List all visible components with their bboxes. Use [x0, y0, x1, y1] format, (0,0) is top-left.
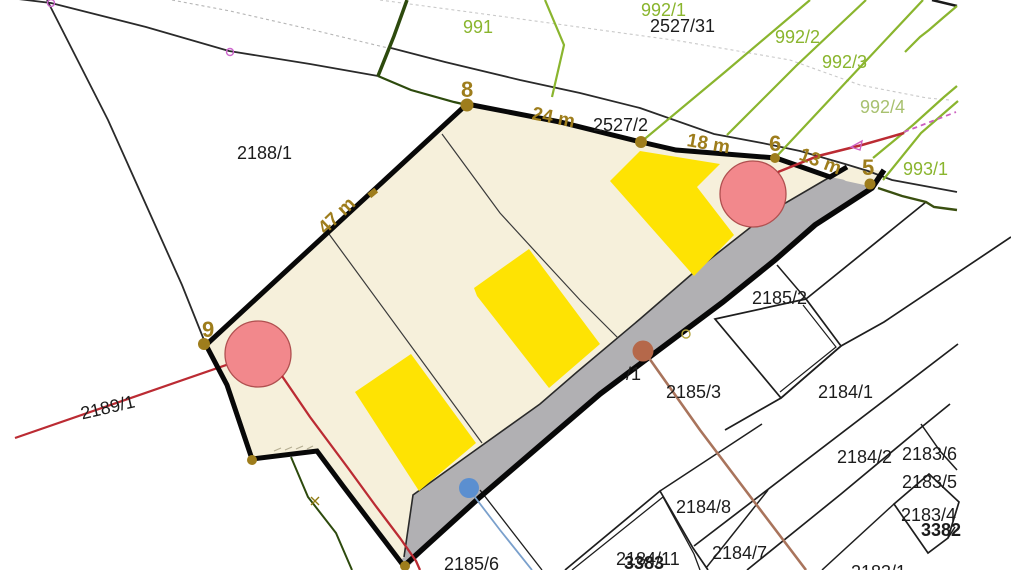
- svg-text:2185/3: 2185/3: [666, 382, 721, 402]
- svg-text:992/4: 992/4: [860, 97, 905, 117]
- svg-text:991: 991: [463, 17, 493, 37]
- svg-text:2184/1: 2184/1: [818, 382, 873, 402]
- svg-text:2185/2: 2185/2: [752, 288, 807, 308]
- svg-text:9: 9: [202, 317, 214, 342]
- svg-text:8: 8: [461, 77, 473, 102]
- svg-text:6: 6: [769, 131, 781, 156]
- svg-text:992/3: 992/3: [822, 52, 867, 72]
- svg-text:/1: /1: [626, 364, 641, 384]
- svg-text:2188/1: 2188/1: [237, 143, 292, 163]
- svg-text:2527/2: 2527/2: [593, 115, 648, 135]
- svg-text:2184/7: 2184/7: [712, 543, 767, 563]
- svg-text:2184/8: 2184/8: [676, 497, 731, 517]
- svg-text:2183/1: 2183/1: [851, 562, 906, 570]
- svg-text:2183/6: 2183/6: [902, 444, 957, 464]
- svg-text:993/1: 993/1: [903, 159, 948, 179]
- svg-text:5: 5: [862, 155, 874, 180]
- svg-text:2183/5: 2183/5: [902, 472, 957, 492]
- svg-text:3383: 3383: [624, 553, 664, 570]
- svg-text:2184/2: 2184/2: [837, 447, 892, 467]
- svg-text:992/2: 992/2: [775, 27, 820, 47]
- svg-text:3382: 3382: [921, 520, 961, 540]
- svg-text:2185/6: 2185/6: [444, 554, 499, 570]
- svg-text:2527/31: 2527/31: [650, 16, 715, 36]
